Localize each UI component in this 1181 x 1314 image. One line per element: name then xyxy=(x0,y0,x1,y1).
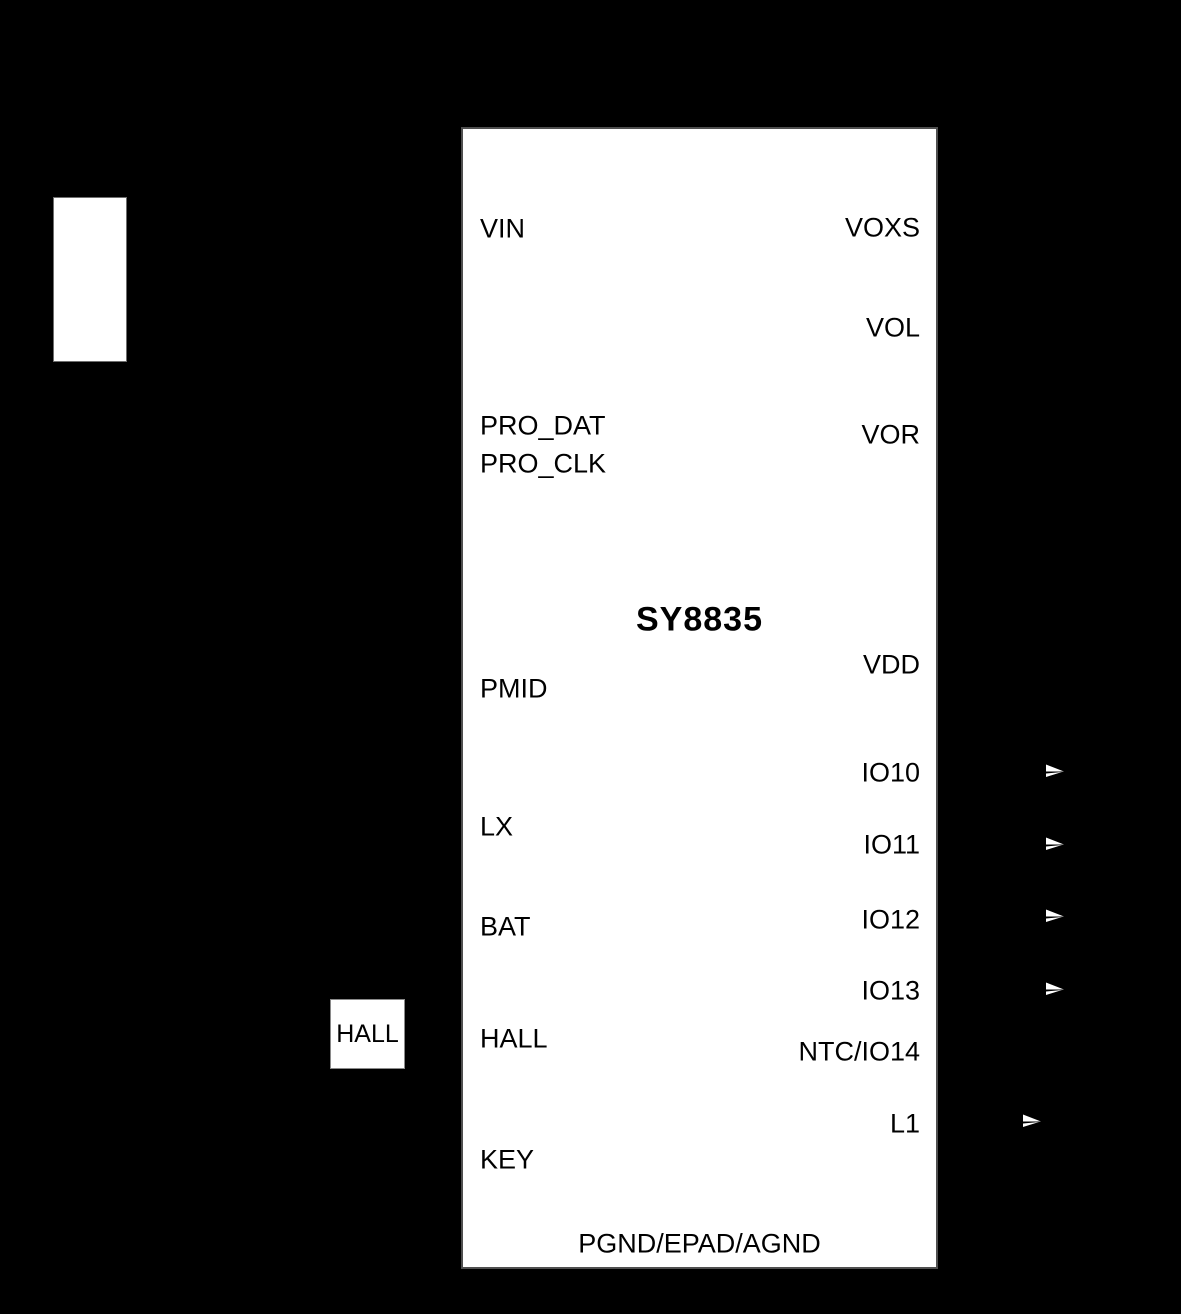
pin-label-io13: IO13 xyxy=(861,976,920,1007)
pin-label-vol: VOL xyxy=(866,313,920,344)
pin-label-io12: IO12 xyxy=(861,905,920,936)
pin-label-vor: VOR xyxy=(861,420,920,451)
pin-label-pro-clk: PRO_CLK xyxy=(480,449,606,480)
pin-label-key: KEY xyxy=(480,1145,534,1176)
pin-label-ntc-io14: NTC/IO14 xyxy=(798,1037,920,1068)
pin-label-bat: BAT xyxy=(480,912,531,943)
pin-label-io10: IO10 xyxy=(861,758,920,789)
signal-arrow-icon-io12 xyxy=(1046,908,1064,924)
pin-label-l1: L1 xyxy=(890,1109,920,1140)
blank-component-rect xyxy=(53,197,127,362)
pin-label-vin: VIN xyxy=(480,214,525,245)
pin-label-vdd: VDD xyxy=(863,650,920,681)
pin-label-pmid: PMID xyxy=(480,674,548,705)
pin-label-lx: LX xyxy=(480,812,513,843)
hall-sensor-box: HALL xyxy=(330,999,405,1069)
signal-arrow-icon-l1 xyxy=(1023,1113,1041,1129)
ic-chip-body: SY8835 VIN PRO_DAT PRO_CLK PMID LX BAT H… xyxy=(461,127,938,1269)
signal-arrow-icon-io10 xyxy=(1046,763,1064,779)
signal-arrow-icon-io11 xyxy=(1046,836,1064,852)
pin-label-hall: HALL xyxy=(480,1024,548,1055)
pin-label-io11: IO11 xyxy=(863,830,920,861)
pin-label-pgnd-epad-agnd: PGND/EPAD/AGND xyxy=(463,1229,936,1260)
hall-sensor-label: HALL xyxy=(336,1020,399,1049)
pin-label-pro-dat: PRO_DAT xyxy=(480,411,606,442)
schematic-diagram: HALL SY8835 VIN PRO_DAT PRO_CLK PMID LX … xyxy=(0,0,1181,1314)
chip-title: SY8835 xyxy=(463,601,936,640)
signal-arrow-icon-io13 xyxy=(1046,981,1064,997)
pin-label-voxs: VOXS xyxy=(845,213,920,244)
